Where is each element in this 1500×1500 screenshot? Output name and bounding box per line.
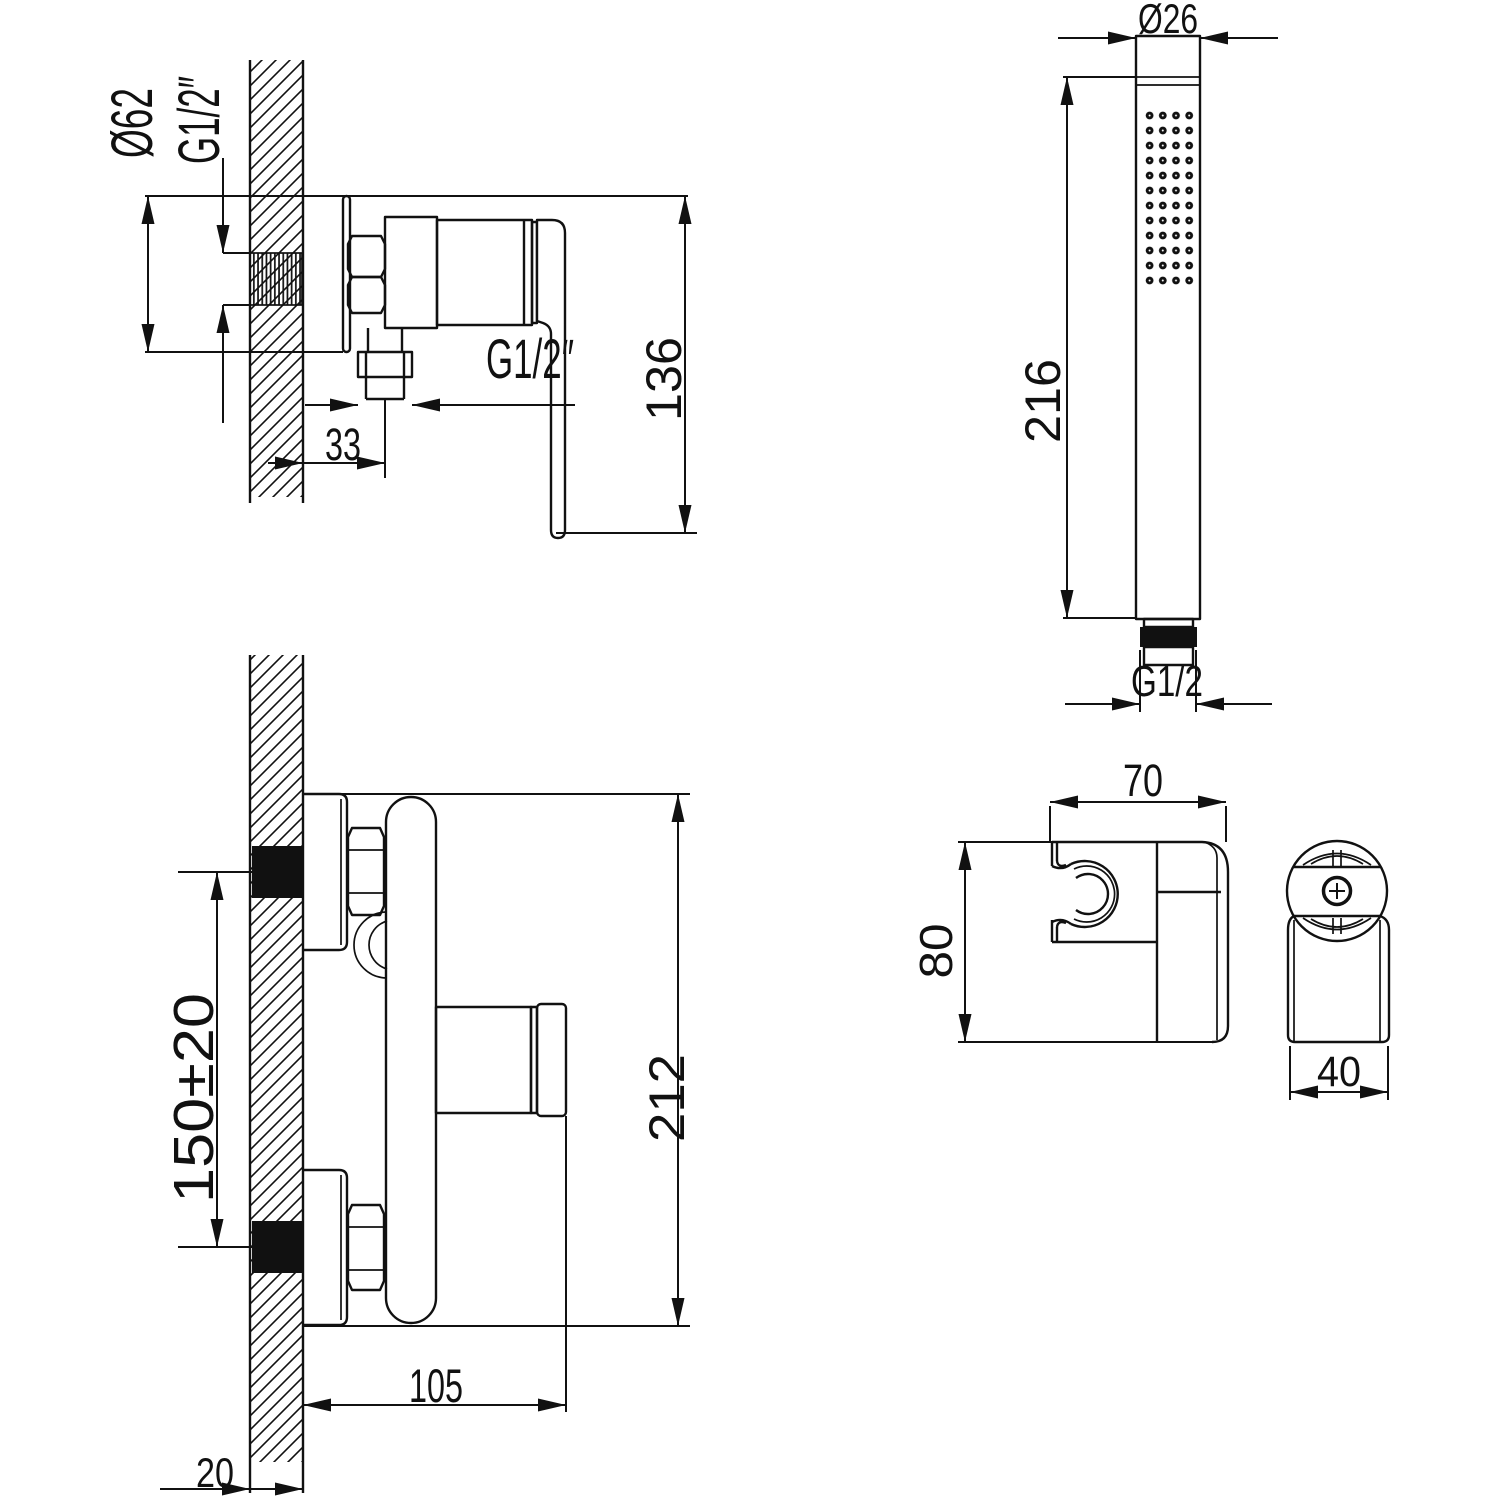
holder-front-view: 40 bbox=[1287, 841, 1389, 1100]
cradle-hook bbox=[1052, 842, 1157, 942]
dim-wall-thickness: 20 bbox=[196, 1449, 234, 1496]
dim-head-diameter: Ø26 bbox=[1138, 0, 1198, 42]
inlet-thread-top bbox=[252, 846, 302, 898]
dim-holder-width: 40 bbox=[1317, 1048, 1361, 1096]
hex-nuts bbox=[348, 828, 384, 1290]
holder-side-view: 70 80 bbox=[910, 755, 1228, 1042]
dim-inlet-spacing: 150±20 bbox=[162, 993, 226, 1203]
mixer-side-view: Ø62 G1/2″ G1/2″ 33 136 bbox=[100, 60, 697, 538]
hand-shower-dimensions: Ø26 216 G1/2 bbox=[1015, 0, 1278, 712]
dim-flange-diameter: Ø62 bbox=[100, 88, 165, 158]
spray-nozzles bbox=[1143, 108, 1196, 288]
holder-front-body bbox=[1288, 916, 1389, 1042]
dim-front-width: 105 bbox=[409, 1359, 463, 1412]
hand-shower-view: Ø26 216 G1/2 bbox=[1015, 0, 1278, 712]
wall-hatch bbox=[250, 655, 303, 1462]
mixer-front-view: 150±20 212 105 20 bbox=[160, 655, 695, 1496]
lever-hint bbox=[354, 912, 387, 978]
dim-inlet-thread: G1/2″ bbox=[167, 76, 232, 164]
outlet-fitting bbox=[358, 328, 412, 399]
dim-holder-depth: 70 bbox=[1123, 755, 1163, 806]
dim-outlet-offset: 33 bbox=[325, 419, 361, 470]
dim-outlet-thread: G1/2″ bbox=[486, 327, 574, 390]
holder-side-dimensions: 70 80 bbox=[910, 755, 1226, 1042]
technical-drawing-page: Ø62 G1/2″ G1/2″ 33 136 Ø26 216 G1/2 bbox=[0, 0, 1500, 1500]
technical-drawing-canvas: Ø62 G1/2″ G1/2″ 33 136 Ø26 216 G1/2 bbox=[0, 0, 1500, 1500]
mounting-plates bbox=[303, 794, 347, 1325]
dim-hand-shower-length: 216 bbox=[1015, 359, 1071, 443]
valve-cylinder bbox=[437, 220, 532, 325]
dim-side-height: 136 bbox=[636, 337, 692, 421]
inlet-thread bbox=[250, 253, 302, 305]
inlet-thread-bottom bbox=[252, 1221, 302, 1273]
hex-nut bbox=[348, 236, 385, 313]
connector-thread bbox=[1140, 627, 1197, 647]
valve-cartridge bbox=[385, 217, 437, 328]
mixer-front-dimensions: 150±20 212 105 20 bbox=[160, 794, 695, 1496]
mixer-side-dimensions: Ø62 G1/2″ G1/2″ 33 136 bbox=[100, 76, 697, 533]
dim-holder-height: 80 bbox=[910, 924, 962, 979]
dim-front-height: 212 bbox=[639, 1054, 695, 1142]
screw-cross-icon bbox=[1329, 883, 1345, 899]
holder-front-dimensions: 40 bbox=[1290, 1046, 1388, 1100]
mixer-body bbox=[386, 797, 436, 1323]
flange bbox=[343, 196, 350, 352]
dim-connector-thread: G1/2 bbox=[1131, 657, 1203, 706]
spout bbox=[436, 1004, 566, 1116]
